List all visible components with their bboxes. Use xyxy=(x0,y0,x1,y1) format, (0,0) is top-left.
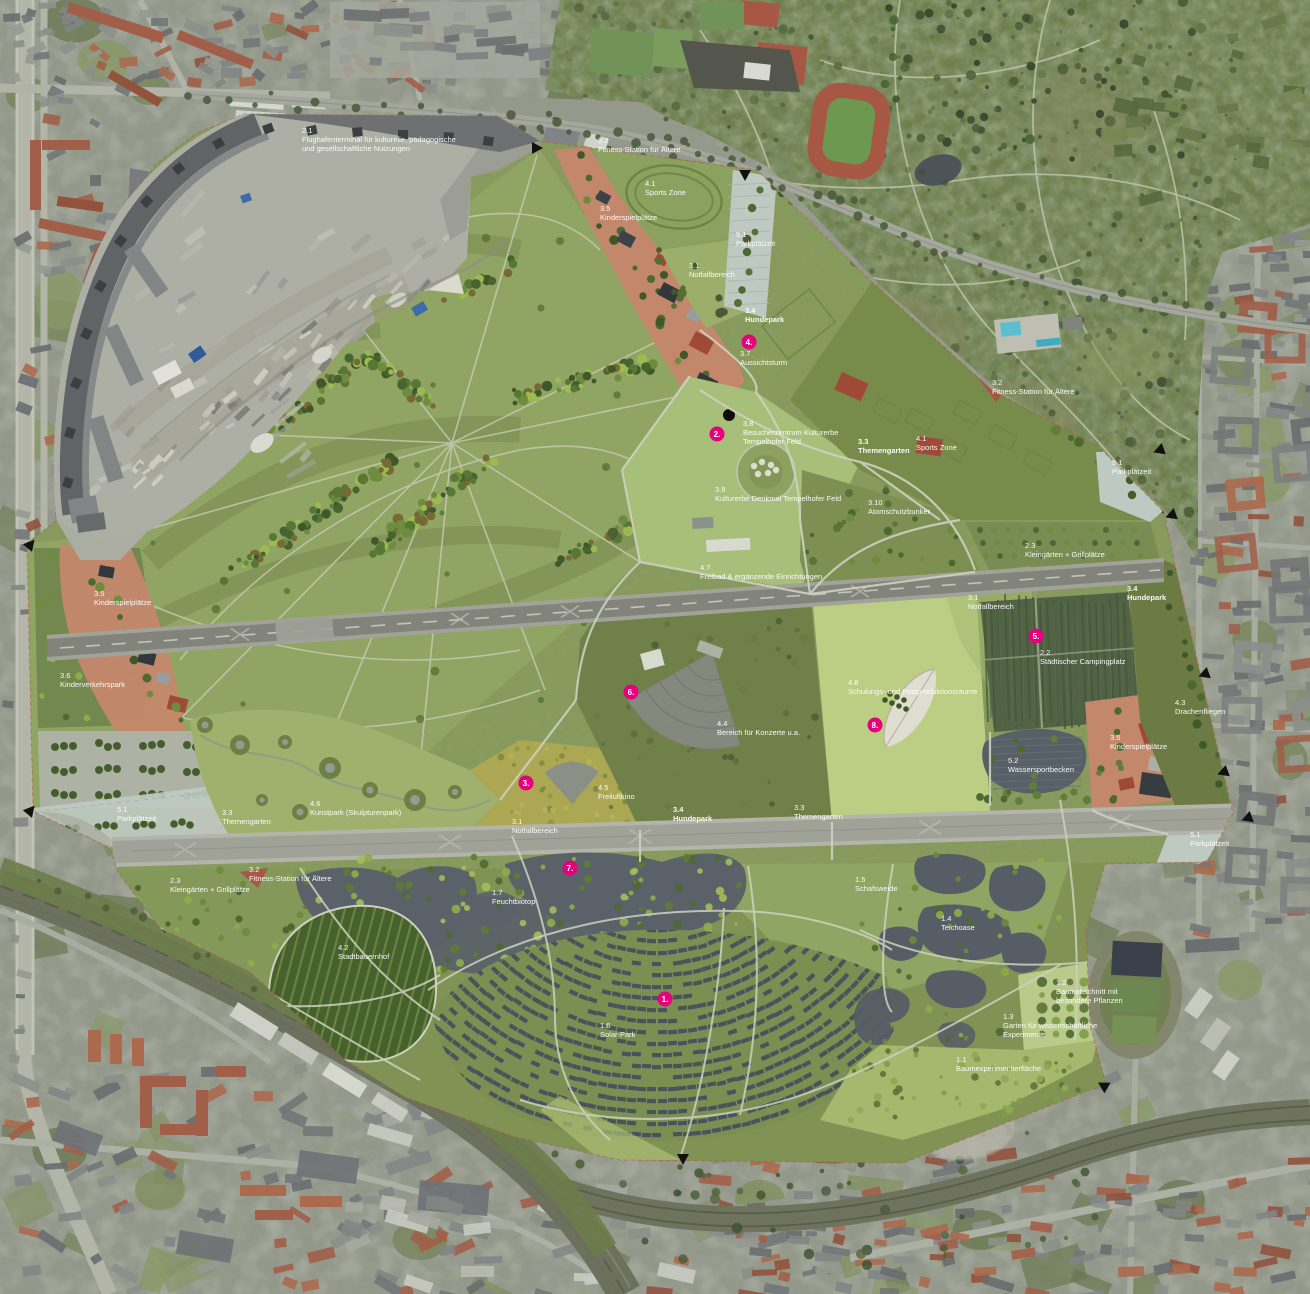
svg-text:Städtischer Campingplatz: Städtischer Campingplatz xyxy=(1040,657,1126,666)
svg-text:4.1: 4.1 xyxy=(916,434,926,443)
svg-text:Kulturerbe Denkmal Tempelhofer: Kulturerbe Denkmal Tempelhofer Feld xyxy=(715,494,841,503)
svg-text:3.4: 3.4 xyxy=(745,306,756,315)
svg-text:5.2: 5.2 xyxy=(1008,756,1018,765)
svg-text:Atomschutzbunker: Atomschutzbunker xyxy=(868,507,931,516)
svg-text:3.4: 3.4 xyxy=(673,805,684,814)
svg-text:Teichoase: Teichoase xyxy=(941,923,975,932)
svg-text:Flughafenterminal für kulturel: Flughafenterminal für kulturelle, pädago… xyxy=(302,135,456,144)
svg-text:Feuchtbiotop: Feuchtbiotop xyxy=(492,897,535,906)
svg-text:4.2: 4.2 xyxy=(338,943,348,952)
svg-text:3.6: 3.6 xyxy=(60,671,70,680)
svg-text:Parkplätzeit: Parkplätzeit xyxy=(117,814,157,823)
svg-text:Kleingärten + Grillplätze: Kleingärten + Grillplätze xyxy=(170,885,250,894)
svg-text:Solar-Park: Solar-Park xyxy=(600,1030,636,1039)
svg-text:5.: 5. xyxy=(1033,632,1040,641)
svg-text:3.3: 3.3 xyxy=(222,808,232,817)
svg-text:Hundepark: Hundepark xyxy=(1127,593,1167,602)
svg-text:Tempelhofer Feld: Tempelhofer Feld xyxy=(743,437,801,446)
svg-text:Parkplätzeit: Parkplätzeit xyxy=(736,239,776,248)
svg-text:Sports Zone: Sports Zone xyxy=(916,443,957,452)
svg-text:3.5: 3.5 xyxy=(94,589,104,598)
svg-text:2.3: 2.3 xyxy=(1025,541,1035,550)
svg-text:Kinderspielplätze: Kinderspielplätze xyxy=(94,598,151,607)
svg-text:2.2: 2.2 xyxy=(1040,648,1050,657)
svg-text:Drachenfliegen: Drachenfliegen xyxy=(1175,707,1225,716)
svg-text:3.9: 3.9 xyxy=(715,485,725,494)
svg-text:Wassersportbecken: Wassersportbecken xyxy=(1008,765,1074,774)
svg-text:Kunstpark (Skulpturenpark): Kunstpark (Skulpturenpark) xyxy=(310,808,402,817)
svg-text:Parkplätzeit: Parkplätzeit xyxy=(1112,467,1152,476)
svg-text:3.1: 3.1 xyxy=(512,817,522,826)
svg-text:1.4: 1.4 xyxy=(941,914,951,923)
svg-text:1.5: 1.5 xyxy=(855,875,865,884)
svg-text:Experimente: Experimente xyxy=(1003,1030,1045,1039)
svg-text:Themengarten: Themengarten xyxy=(858,446,910,455)
svg-text:2.3: 2.3 xyxy=(170,876,180,885)
svg-text:1.3: 1.3 xyxy=(1003,1012,1013,1021)
svg-text:4.1: 4.1 xyxy=(645,179,655,188)
svg-text:3.4: 3.4 xyxy=(1127,584,1138,593)
svg-text:3.2: 3.2 xyxy=(992,378,1002,387)
svg-text:3.8: 3.8 xyxy=(743,419,753,428)
svg-text:besondere Pflanzen: besondere Pflanzen xyxy=(1056,996,1123,1005)
svg-text:3.: 3. xyxy=(523,779,530,788)
svg-text:4.3: 4.3 xyxy=(1175,698,1185,707)
svg-text:Kinderspielplätze: Kinderspielplätze xyxy=(600,213,657,222)
svg-text:1.7: 1.7 xyxy=(492,888,502,897)
svg-text:Fitness-Station für Ältere: Fitness-Station für Ältere xyxy=(249,874,332,883)
svg-text:5.1: 5.1 xyxy=(117,805,127,814)
svg-text:3.7: 3.7 xyxy=(740,349,750,358)
svg-text:Notfallbereich: Notfallbereich xyxy=(689,270,735,279)
svg-text:Themengarten: Themengarten xyxy=(222,817,271,826)
svg-text:Besucherzentrum Kulturerbe: Besucherzentrum Kulturerbe xyxy=(743,428,838,437)
svg-text:1.2: 1.2 xyxy=(1056,978,1066,987)
svg-text:7.: 7. xyxy=(567,864,574,873)
svg-text:1.: 1. xyxy=(662,995,669,1004)
svg-text:Kinderverkehrspark: Kinderverkehrspark xyxy=(60,680,125,689)
svg-text:4.7: 4.7 xyxy=(700,563,710,572)
svg-text:Schafsweide: Schafsweide xyxy=(855,884,898,893)
svg-text:Hundepark: Hundepark xyxy=(673,814,713,823)
svg-text:6.: 6. xyxy=(628,688,635,697)
svg-text:1.1: 1.1 xyxy=(956,1055,966,1064)
svg-text:Themengarten: Themengarten xyxy=(794,812,843,821)
svg-text:Hundepark: Hundepark xyxy=(745,315,785,324)
svg-text:Stadtbauernhof: Stadtbauernhof xyxy=(338,952,390,961)
svg-text:Kinderspielplätze: Kinderspielplätze xyxy=(1110,742,1167,751)
svg-text:Baumabschnitt mit: Baumabschnitt mit xyxy=(1056,987,1119,996)
svg-text:und gesellschaftliche Nutzunge: und gesellschaftliche Nutzungen xyxy=(302,144,410,153)
svg-text:Kleingärten + Grillplätze: Kleingärten + Grillplätze xyxy=(1025,550,1105,559)
svg-text:Fitness-Station für Ältere: Fitness-Station für Ältere xyxy=(992,387,1075,396)
svg-text:1.6: 1.6 xyxy=(600,1021,610,1030)
svg-text:3.3: 3.3 xyxy=(794,803,804,812)
svg-text:8.: 8. xyxy=(872,721,879,730)
svg-text:5.1: 5.1 xyxy=(1190,830,1200,839)
svg-text:Freibad & ergänzende Einrichtu: Freibad & ergänzende Einrichtungen xyxy=(700,572,822,581)
svg-text:Sports Zone: Sports Zone xyxy=(645,188,686,197)
svg-text:3.1: 3.1 xyxy=(689,261,699,270)
svg-text:4.4: 4.4 xyxy=(717,719,727,728)
svg-text:Schulungs- und Postproduktions: Schulungs- und Postproduktionsräume xyxy=(848,687,977,696)
svg-text:4.6: 4.6 xyxy=(310,799,320,808)
svg-text:3.3: 3.3 xyxy=(858,437,868,446)
svg-text:3.2: 3.2 xyxy=(598,136,608,145)
svg-text:Aussichtsturm: Aussichtsturm xyxy=(740,358,787,367)
svg-text:Bereich für Konzerte u.a.: Bereich für Konzerte u.a. xyxy=(717,728,800,737)
svg-text:5.1: 5.1 xyxy=(1112,458,1122,467)
svg-text:3.5: 3.5 xyxy=(600,204,610,213)
svg-text:3.10: 3.10 xyxy=(868,498,883,507)
svg-text:2.1: 2.1 xyxy=(302,126,312,135)
svg-text:4.: 4. xyxy=(746,338,753,347)
svg-text:Parkplätzeit: Parkplätzeit xyxy=(1190,839,1230,848)
svg-text:3.1: 3.1 xyxy=(968,593,978,602)
svg-text:4.5: 4.5 xyxy=(598,783,608,792)
svg-text:Baumexperimentierfläche: Baumexperimentierfläche xyxy=(956,1064,1041,1073)
svg-text:Fitness-Station für Ältere: Fitness-Station für Ältere xyxy=(598,145,681,154)
svg-text:3.2: 3.2 xyxy=(249,865,259,874)
svg-text:Freiluftkino: Freiluftkino xyxy=(598,792,635,801)
svg-text:5.1: 5.1 xyxy=(736,230,746,239)
svg-text:4.8: 4.8 xyxy=(848,678,858,687)
svg-text:3.5: 3.5 xyxy=(1110,733,1120,742)
svg-text:2.: 2. xyxy=(714,430,721,439)
svg-text:Garten für wissenschaftliche: Garten für wissenschaftliche xyxy=(1003,1021,1097,1030)
svg-text:Notfallbereich: Notfallbereich xyxy=(512,826,558,835)
svg-text:Notfallbereich: Notfallbereich xyxy=(968,602,1014,611)
